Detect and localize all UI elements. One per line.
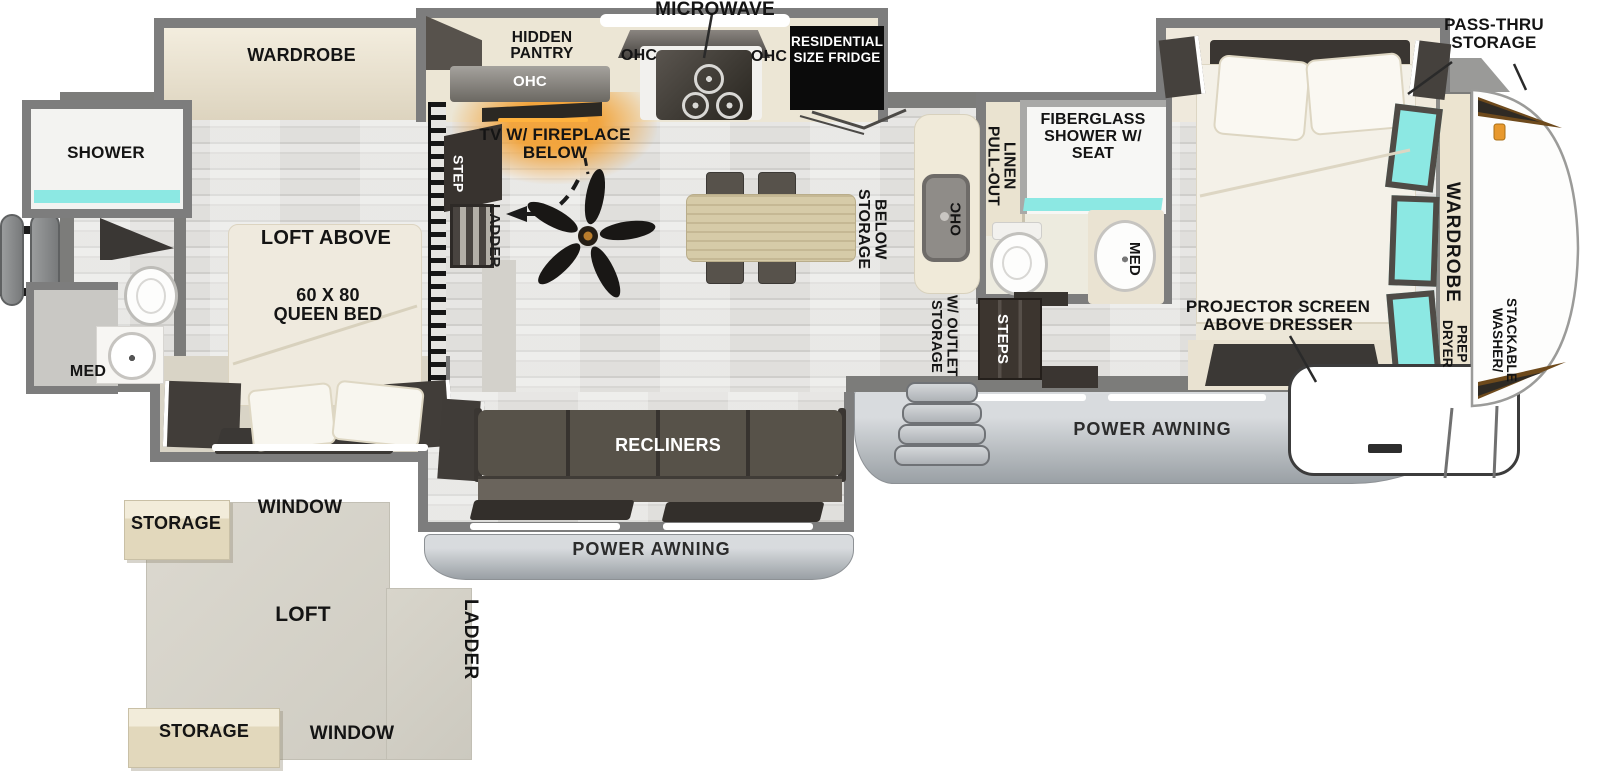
front-wardrobe-label: WARDROBE [1442, 166, 1472, 318]
microwave-label: MICROWAVE [640, 0, 790, 20]
pillow-icon [1213, 54, 1312, 142]
storage-outlet-label: STORAGE W/ OUTLET [928, 292, 970, 380]
fridge-label: RESIDENTIAL SIZE FRIDGE [791, 34, 883, 66]
loft-storage-top-label: STORAGE [126, 514, 226, 533]
ohc-pantry-label: OHC [495, 74, 565, 90]
hidden-pantry-label: HIDDEN PANTRY [492, 30, 592, 63]
recliner-footmat [470, 500, 635, 520]
rear-wardrobe-label: WARDROBE [214, 46, 389, 65]
recliner-divider [566, 410, 570, 476]
recliners-label: RECLINERS [598, 436, 738, 455]
front-cap-accent-top [1478, 97, 1562, 128]
ohc-right-label: OHC [746, 49, 792, 66]
steps-label: STEPS [994, 304, 1024, 374]
passthru-compartment [1446, 58, 1510, 92]
loft-above-label: LOFT ABOVE [246, 228, 406, 249]
front-cap-handle-icon [1494, 124, 1505, 140]
awning-rail-highlight [1108, 394, 1266, 401]
mid-toilet-bowl [1002, 246, 1032, 280]
mid-med-label: MED [1126, 228, 1156, 290]
bedroom-step [1042, 366, 1098, 388]
entry-steps [906, 382, 978, 403]
shower-label: SHOWER [40, 144, 172, 162]
fiberglass-shower-label: FIBERGLASS SHOWER W/ SEAT [1028, 112, 1158, 162]
burner-icon [716, 92, 743, 119]
burner-icon [694, 64, 724, 94]
dining-table [686, 194, 856, 262]
step-label: STEP [451, 142, 479, 206]
loft-window-top-label: WINDOW [248, 498, 352, 518]
bedroom-window-icon [1159, 36, 1206, 98]
pass-thru-storage-label: PASS-THRU STORAGE [1416, 16, 1572, 52]
front-cap-accent-top-dark [1478, 100, 1540, 122]
entry-door-icon [1368, 444, 1402, 453]
loft-window-bottom-label: WINDOW [296, 724, 408, 744]
pull-out-linen-label: PULL-OUT LINEN [984, 104, 1024, 228]
storage-below-label: STORAGE BELOW [854, 182, 896, 277]
loft-label: LOFT [254, 604, 352, 626]
loft-ladder-label: LADDER [460, 592, 492, 686]
recliner-footmat [662, 502, 825, 522]
loft-storage-bottom-label: STORAGE [140, 722, 268, 741]
tv-fireplace-label: TV W/ FIREPLACE BELOW [466, 126, 644, 162]
pillow-icon [331, 380, 425, 449]
power-awning-main-label: POWER AWNING [1060, 420, 1245, 439]
burner-icon [682, 92, 709, 119]
pillow-icon [247, 382, 337, 452]
recliner-sofa-seat [478, 476, 842, 502]
queen-bed-label: 60 X 80 QUEEN BED [266, 286, 390, 324]
side-window-icon [1388, 195, 1439, 287]
rear-rack-cylinder-icon [0, 214, 24, 306]
island-ohc-label: OHC [938, 190, 964, 248]
rear-toilet-bowl [136, 278, 166, 314]
rear-wardrobe-slide [154, 18, 448, 120]
dryer-prep-label: DRYER PREP [1440, 314, 1476, 374]
slide-gap-highlight [212, 444, 428, 451]
entry-steps [898, 424, 986, 445]
entry-steps [894, 445, 990, 466]
side-window-icon [1385, 103, 1443, 192]
power-awning-living-label: POWER AWNING [564, 540, 739, 559]
passthru-pointer-line [1514, 64, 1526, 90]
ohc-left-label: OHC [616, 48, 662, 65]
recliner-divider [746, 410, 750, 476]
slide-gap-highlight [470, 523, 620, 530]
stackable-washer-label: STACKABLE WASHER/ [1482, 296, 1518, 384]
rv-floorplan: MICROWAVE HIDDEN PANTRY OHC OHC OHC RESI… [0, 0, 1600, 773]
fireplace-ember-line [498, 118, 588, 122]
entry-steps [902, 403, 982, 424]
shower-water-strip [34, 190, 180, 203]
rear-med-label: MED [58, 364, 118, 381]
slide-gap-highlight [663, 523, 813, 530]
projector-screen-label: PROJECTOR SCREEN ABOVE DRESSER [1172, 298, 1384, 334]
ladder-label: LADDER [486, 192, 512, 280]
